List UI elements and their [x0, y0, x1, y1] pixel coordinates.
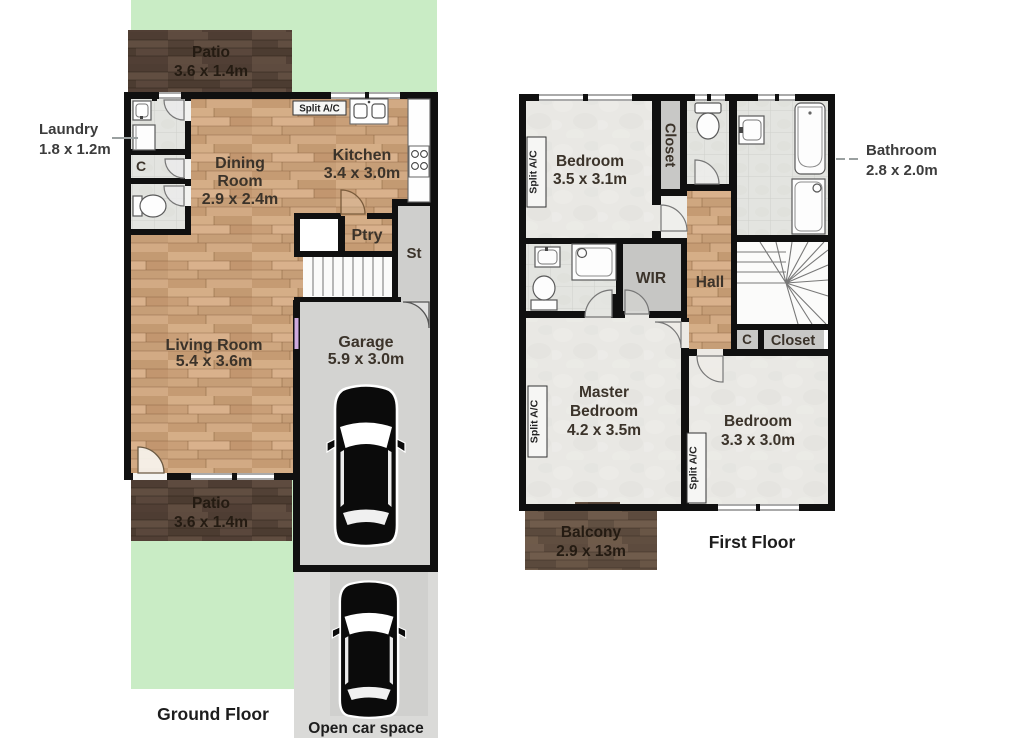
svg-text:Ground Floor: Ground Floor	[157, 704, 269, 724]
svg-text:5.9 x 3.0m: 5.9 x 3.0m	[328, 351, 405, 368]
svg-text:Bedroom: Bedroom	[556, 153, 624, 170]
svg-text:WIR: WIR	[636, 270, 666, 287]
svg-text:Closet: Closet	[771, 333, 815, 349]
svg-text:Garage: Garage	[338, 334, 393, 351]
svg-text:4.2 x 3.5m: 4.2 x 3.5m	[567, 422, 641, 439]
svg-text:Hall: Hall	[696, 274, 724, 291]
svg-text:Open car space: Open car space	[308, 720, 424, 737]
svg-text:3.6 x 1.4m: 3.6 x 1.4m	[174, 63, 248, 80]
svg-text:Living Room: Living Room	[166, 337, 263, 354]
svg-text:2.9 x 13m: 2.9 x 13m	[556, 543, 626, 560]
svg-text:Bathroom: Bathroom	[866, 142, 937, 159]
svg-text:Room: Room	[217, 173, 262, 190]
svg-text:Laundry: Laundry	[39, 121, 99, 138]
svg-text:Master: Master	[579, 384, 629, 401]
svg-text:C: C	[136, 158, 146, 174]
svg-text:Patio: Patio	[192, 44, 230, 61]
svg-text:C: C	[742, 332, 752, 347]
svg-text:3.4 x 3.0m: 3.4 x 3.0m	[324, 165, 401, 182]
svg-text:3.3 x 3.0m: 3.3 x 3.0m	[721, 432, 795, 449]
svg-text:2.8 x 2.0m: 2.8 x 2.0m	[866, 162, 938, 179]
svg-text:Kitchen: Kitchen	[333, 147, 392, 164]
svg-text:Ptry: Ptry	[351, 227, 382, 244]
svg-text:Bedroom: Bedroom	[570, 403, 638, 420]
svg-text:First Floor: First Floor	[709, 532, 796, 552]
svg-text:Balcony: Balcony	[561, 524, 622, 541]
svg-text:3.5 x 3.1m: 3.5 x 3.1m	[553, 171, 627, 188]
svg-text:5.4 x 3.6m: 5.4 x 3.6m	[176, 353, 253, 370]
svg-text:Split A/C: Split A/C	[528, 150, 540, 194]
svg-text:3.6 x 1.4m: 3.6 x 1.4m	[174, 514, 248, 531]
svg-text:Dining: Dining	[215, 155, 265, 172]
svg-text:Closet: Closet	[662, 123, 678, 167]
svg-text:Split A/C: Split A/C	[299, 104, 339, 115]
svg-text:Split A/C: Split A/C	[688, 446, 700, 490]
svg-text:St: St	[407, 245, 422, 262]
svg-text:Split A/C: Split A/C	[529, 399, 541, 443]
svg-text:Bedroom: Bedroom	[724, 413, 792, 430]
svg-text:1.8 x 1.2m: 1.8 x 1.2m	[39, 141, 111, 158]
svg-text:2.9 x 2.4m: 2.9 x 2.4m	[202, 191, 279, 208]
svg-text:Patio: Patio	[192, 495, 230, 512]
